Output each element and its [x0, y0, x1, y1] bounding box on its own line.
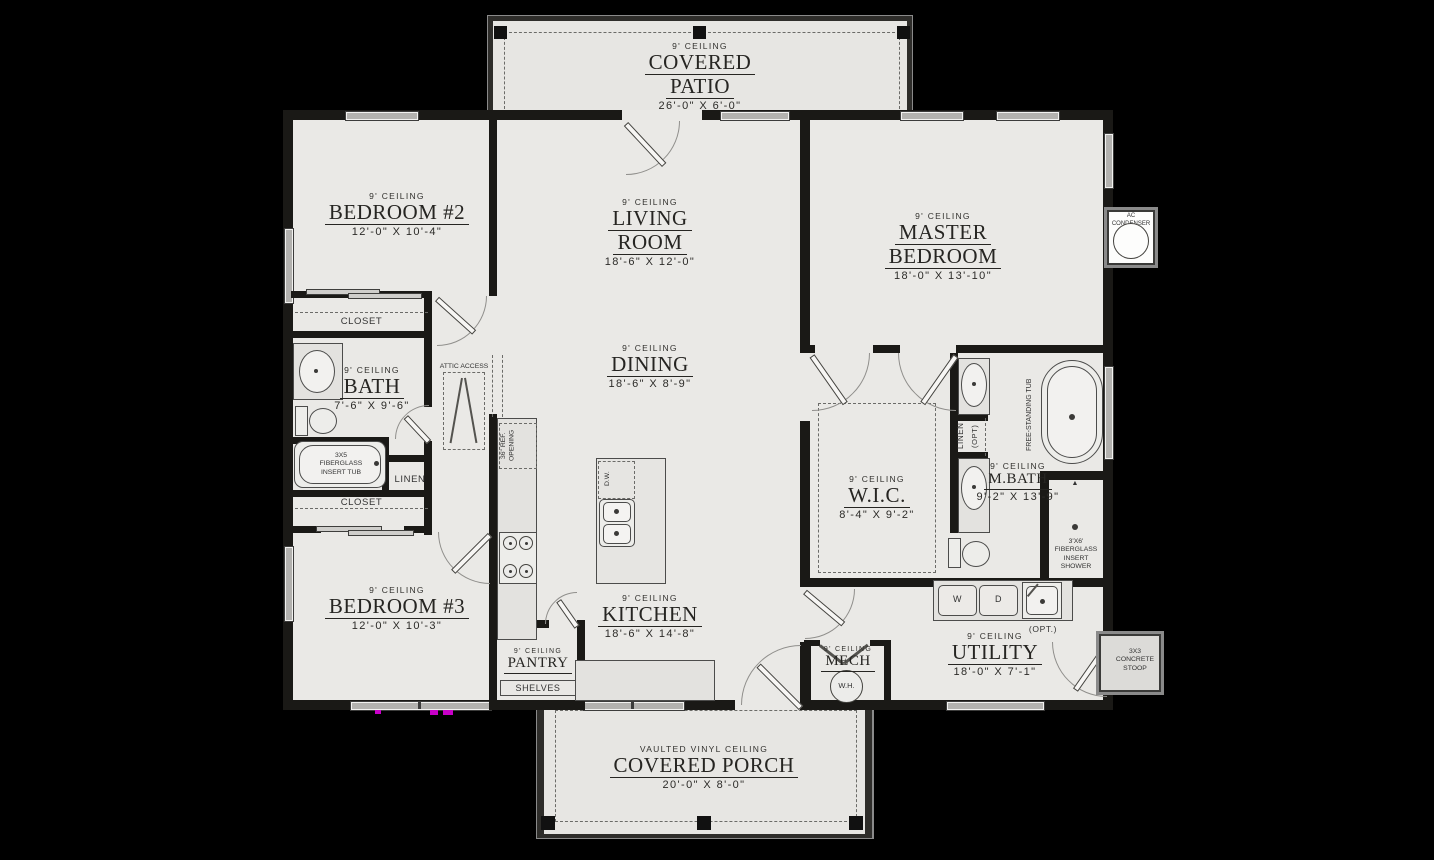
utility-dims: 18'-0" X 7'-1": [895, 667, 1095, 679]
kitchen-name: KITCHEN: [598, 603, 702, 627]
patio-wall-left: [488, 16, 493, 116]
window-mullion: [418, 701, 421, 709]
window: [350, 701, 492, 711]
window: [720, 111, 790, 121]
ref-label-line2: OPENING: [508, 424, 516, 467]
pantry-ceiling: 9' CEILING: [499, 648, 577, 655]
concrete-stoop-label: 3X3 CONCRETE STOOP: [1112, 648, 1158, 673]
kitchen-counter-south: [575, 660, 715, 701]
mech-name: MECH: [821, 654, 874, 672]
patio-name-line1: COVERED: [645, 51, 756, 75]
tub-label-line1: 3X5: [306, 452, 376, 460]
freestanding-tub-inner: [1047, 366, 1097, 458]
fridge-label: 36" REF. OPENING: [500, 424, 534, 467]
ref-label-line1: 36" REF.: [500, 424, 508, 467]
wic-name: W.I.C.: [844, 484, 910, 508]
toilet-tank: [948, 538, 961, 568]
pantry-name: PANTRY: [504, 656, 573, 674]
linen-opt-label: (OPT): [970, 419, 982, 453]
master-name-line1: MASTER: [895, 221, 991, 245]
dishwasher-label: D.W.: [604, 464, 624, 494]
shower-drain: [1072, 524, 1078, 530]
freestanding-tub-label: FREE-STANDING TUB: [1026, 372, 1038, 458]
porch-wall-bottom: [537, 834, 872, 838]
artifact-dot: [443, 710, 453, 715]
dining-label: 9' CEILING DINING 18'-6" X 8'-9": [550, 344, 750, 391]
attic-access-label: ATTIC ACCESS: [436, 363, 492, 371]
drain: [1040, 599, 1045, 604]
tub-label: 3X5 FIBERGLASS INSERT TUB: [306, 452, 376, 477]
closet-rod: [295, 508, 428, 511]
linen-niche-dash: [985, 418, 988, 456]
porch-post: [541, 816, 555, 830]
living-name-line2: ROOM: [613, 231, 686, 255]
stoop-label-line3: STOOP: [1112, 665, 1158, 673]
tub-faucet: [374, 461, 379, 466]
utility-label: 9' CEILING UTILITY 18'-0" X 7'-1": [895, 632, 1095, 679]
dining-name: DINING: [607, 353, 693, 377]
drain: [1069, 414, 1075, 420]
mech-label: 9' CEILING MECH: [806, 646, 890, 672]
master-name-line2: BEDROOM: [885, 245, 1002, 269]
drain: [614, 531, 619, 536]
burner-dot: [525, 570, 528, 573]
shower-label-line2: FIBERGLASS: [1047, 546, 1105, 554]
artifact-dot: [375, 710, 381, 714]
shower-label-line4: SHOWER: [1047, 563, 1105, 571]
patio-wall-top: [488, 16, 912, 21]
mech-ceiling: 9' CEILING: [806, 646, 890, 653]
stoop-label-line2: CONCRETE: [1112, 656, 1158, 664]
window: [345, 111, 419, 121]
window: [1104, 366, 1114, 460]
tub-label-line3: INSERT TUB: [306, 469, 376, 477]
patio-post: [693, 26, 706, 39]
window: [1104, 133, 1114, 189]
mbath-ceiling: 9' CEILING: [928, 462, 1108, 471]
cased-opening-dash: [502, 355, 505, 417]
window: [583, 701, 685, 711]
artifact-dot: [430, 710, 438, 715]
porch-dims: 20'-0" X 8'-0": [604, 780, 804, 792]
wall-master-south: [873, 345, 900, 353]
master-dims: 18'-0" X 13'-10": [843, 271, 1043, 283]
dining-dims: 18'-6" X 8'-9": [550, 379, 750, 391]
living-room-label: 9' CEILING LIVING ROOM 18'-6" X 12'-0": [550, 198, 750, 269]
linen-master-label: LINEN: [956, 419, 968, 453]
kitchen-label: 9' CEILING KITCHEN 18'-6" X 14'-8": [550, 594, 750, 641]
shower-label-line1: 3'X6': [1047, 538, 1105, 546]
porch-name: COVERED PORCH: [610, 754, 799, 778]
window: [996, 111, 1060, 121]
window: [900, 111, 964, 121]
linen-bath-label: LINEN: [390, 474, 430, 485]
bedroom2-label: 9' CEILING BEDROOM #2 12'-0" X 10'-4": [297, 192, 497, 239]
mbath-dims: 9'-2" X 13'-9": [928, 492, 1108, 504]
tub-label-line2: FIBERGLASS: [306, 460, 376, 468]
living-name-line1: LIVING: [608, 207, 691, 231]
patio-post: [494, 26, 507, 39]
kitchen-dims: 18'-6" X 14'-8": [550, 629, 750, 641]
bedroom3-dims: 12'-0" X 10'-3": [297, 621, 497, 633]
wall-closet2-top: [291, 490, 432, 497]
mbath-label: 9' CEILING M.BATH 9'-2" X 13'-9": [928, 462, 1108, 503]
stoop-label-line1: 3X3: [1112, 648, 1158, 656]
porch-post: [697, 816, 711, 830]
utility-name: UTILITY: [948, 641, 1042, 665]
bath-name: BATH: [340, 375, 405, 399]
shelves-label: SHELVES: [500, 680, 576, 696]
mbath-name: M.BATH: [984, 472, 1051, 490]
shower-label-line3: INSERT: [1047, 555, 1105, 563]
bedroom2-name: BEDROOM #2: [325, 201, 469, 225]
patio-post: [897, 26, 910, 39]
washer-label: W: [938, 594, 977, 604]
window: [284, 546, 294, 622]
porch-post: [849, 816, 863, 830]
cased-opening-dash: [492, 355, 495, 417]
bath-dims: 7'-6" X 9'-6": [302, 401, 442, 413]
living-dims: 18'-6" X 12'-0": [550, 257, 750, 269]
bedroom3-label: 9' CEILING BEDROOM #3 12'-0" X 10'-3": [297, 586, 497, 633]
master-bedroom-label: 9' CEILING MASTER BEDROOM 18'-0" X 13'-1…: [843, 212, 1043, 283]
bedroom2-dims: 12'-0" X 10'-4": [297, 227, 497, 239]
window: [946, 701, 1045, 711]
dryer-label: D: [979, 594, 1018, 604]
closet-bed3-label: CLOSET: [296, 497, 427, 508]
patio-name-line2: PATIO: [666, 75, 734, 99]
toilet-bowl: [962, 541, 990, 567]
pantry-label: 9' CEILING PANTRY: [499, 648, 577, 674]
ac-condenser-fan: [1113, 223, 1149, 259]
floor-plan: 9' CEILING COVERED PATIO 26'-0" X 6'-0" …: [0, 0, 1434, 860]
drain: [614, 509, 619, 514]
porch-wall-right: [865, 703, 872, 838]
bedroom3-name: BEDROOM #3: [325, 595, 469, 619]
closet-bed2-label: CLOSET: [296, 316, 427, 327]
wic-dims: 8'-4" X 9'-2": [792, 510, 962, 522]
window-mullion: [631, 701, 634, 709]
closet-slider-door: [348, 530, 414, 536]
shower-label: 3'X6' FIBERGLASS INSERT SHOWER: [1047, 538, 1105, 572]
bath-label: 9' CEILING BATH 7'-6" X 9'-6": [302, 366, 442, 413]
